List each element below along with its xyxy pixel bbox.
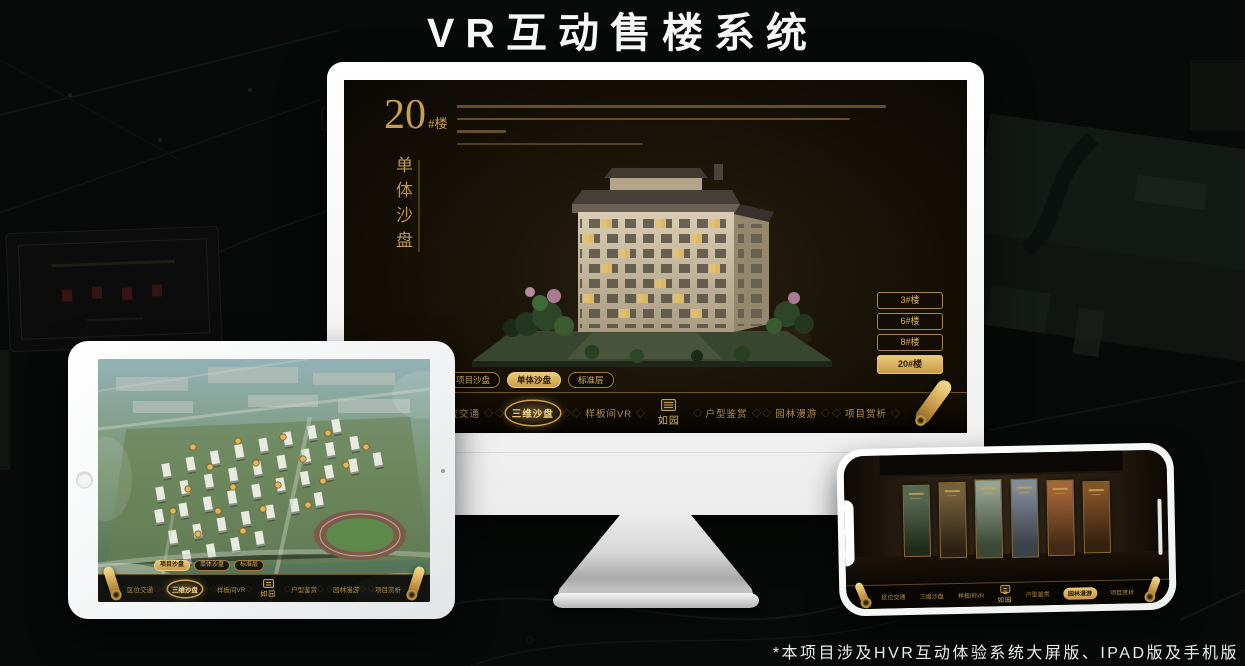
monitor-stand-foot <box>553 593 759 608</box>
tablet-bottom-nav: 区位交通 三维沙盘 样板间VR 如园 户型鉴赏 园林漫游 项目赏析 <box>98 574 430 602</box>
nav-item-project-appreciation[interactable]: 项目赏析 <box>843 402 889 424</box>
subtitle-english-decoration <box>418 160 420 252</box>
floor-button-6[interactable]: 6#楼 <box>877 313 943 330</box>
tablet-device: 项目沙盘 单体沙盘 标准层 区位交通 三维沙盘 样板间VR 如园 户型鉴赏 园林… <box>68 341 455 619</box>
gallery-panel-row <box>902 477 1111 560</box>
tablet-tab-standard-floor[interactable]: 标准层 <box>234 560 264 571</box>
building-3d-render <box>442 156 872 386</box>
tablet-tab-project-sandtable[interactable]: 项目沙盘 <box>154 560 190 571</box>
block-suffix: #楼 <box>428 116 448 131</box>
home-button[interactable] <box>76 472 93 489</box>
logo-emblem-icon <box>1000 585 1010 593</box>
floor-button-8[interactable]: 8#楼 <box>877 334 943 351</box>
tablet-tab-single-sandtable[interactable]: 单体沙盘 <box>194 560 230 571</box>
nav-item-project-appreciation[interactable]: 项目赏析 <box>374 582 402 596</box>
logo-text: 如园 <box>260 589 276 599</box>
nav-item-3d-sandtable[interactable]: 三维沙盘 <box>506 401 560 425</box>
block-number: 20 <box>384 92 426 138</box>
nav-item-showroom-vr[interactable]: 样板间VR <box>583 402 634 424</box>
nav-item-location-traffic[interactable]: 区位交通 <box>880 591 906 603</box>
nav-item-unit-appreciation[interactable]: 户型鉴赏 <box>290 582 318 596</box>
gallery-panel[interactable] <box>938 481 967 558</box>
nav-item-showroom-vr[interactable]: 样板间VR <box>957 589 986 601</box>
brand-logo[interactable]: 如园 <box>658 399 680 427</box>
tab-standard-floor[interactable]: 标准层 <box>568 372 614 388</box>
brand-logo[interactable]: 如园 <box>997 585 1012 604</box>
floor-button-3[interactable]: 3#楼 <box>877 292 943 309</box>
nav-item-garden-roam[interactable]: 园林漫游 <box>1063 587 1097 600</box>
footnote-text: *本项目涉及HVR互动体验系统大屏版、IPAD版及手机版 <box>773 639 1239 663</box>
logo-text: 如园 <box>658 412 680 427</box>
tablet-screen: 项目沙盘 单体沙盘 标准层 区位交通 三维沙盘 样板间VR 如园 户型鉴赏 园林… <box>98 359 430 602</box>
floor-button-20[interactable]: 20#楼 <box>877 355 943 374</box>
nav-item-3d-sandtable[interactable]: 三维沙盘 <box>919 590 945 602</box>
gallery-panel[interactable] <box>1082 480 1111 553</box>
nav-item-3d-sandtable[interactable]: 三维沙盘 <box>168 581 202 597</box>
nav-item-project-appreciation[interactable]: 项目赏析 <box>1109 586 1135 598</box>
floor-button-group: 3#楼 6#楼 8#楼 20#楼 <box>877 292 943 374</box>
nav-item-location-traffic[interactable]: 区位交通 <box>126 582 154 596</box>
phone-device: 区位交通 三维沙盘 样板间VR 如园 户型鉴赏 园林漫游 项目赏析 <box>836 442 1176 616</box>
camera-icon <box>441 469 445 473</box>
description-text-lines <box>457 105 899 155</box>
gallery-panel[interactable] <box>1010 478 1039 558</box>
nav-item-showroom-vr[interactable]: 样板间VR <box>216 582 247 596</box>
tab-single-sandtable[interactable]: 单体沙盘 <box>507 372 561 388</box>
gallery-panel[interactable] <box>902 484 931 557</box>
phone-screen: 区位交通 三维沙盘 样板间VR 如园 户型鉴赏 园林漫游 项目赏析 <box>843 450 1169 610</box>
nav-item-unit-appreciation[interactable]: 户型鉴赏 <box>704 402 750 424</box>
gallery-panel[interactable] <box>974 479 1003 559</box>
tablet-sub-tab-group: 项目沙盘 单体沙盘 标准层 <box>154 560 264 571</box>
block-subtitle-vertical: 单体沙盘 <box>390 156 415 256</box>
gallery-panel[interactable] <box>1046 479 1075 556</box>
block-title: 20#楼 <box>384 94 448 136</box>
logo-emblem-icon <box>661 399 676 411</box>
page-title: VR互动售楼系统 <box>0 0 1245 58</box>
nav-item-garden-roam[interactable]: 园林漫游 <box>332 582 360 596</box>
phone-notch <box>844 500 854 566</box>
nav-item-garden-roam[interactable]: 园林漫游 <box>773 402 819 424</box>
logo-text: 如园 <box>997 594 1012 604</box>
sub-tab-group: 项目沙盘 单体沙盘 标准层 <box>446 372 614 388</box>
logo-emblem-icon <box>263 579 274 588</box>
brand-logo[interactable]: 如园 <box>260 579 276 599</box>
nav-item-unit-appreciation[interactable]: 户型鉴赏 <box>1025 588 1051 600</box>
